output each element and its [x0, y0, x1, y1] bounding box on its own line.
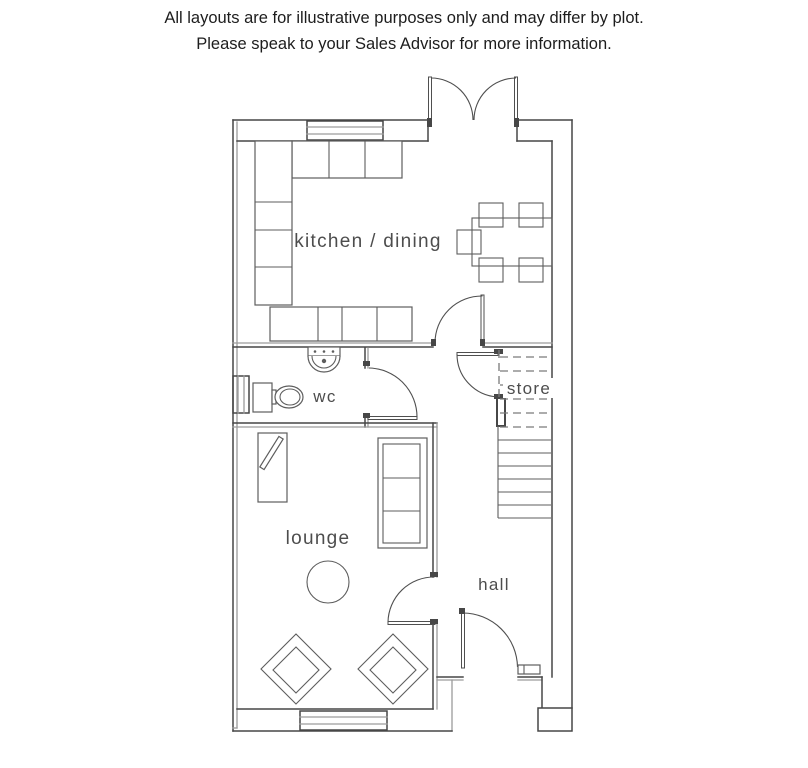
kitchen-door — [431, 295, 485, 346]
sofa — [378, 438, 427, 548]
wc-door — [363, 361, 417, 420]
dining-set — [457, 203, 552, 282]
store-door — [457, 349, 503, 399]
room-label-store: store — [507, 379, 551, 398]
porch-pier — [538, 708, 572, 731]
room-label-wc: wc — [312, 387, 336, 406]
room-label-kitchen-dining: kitchen / dining — [294, 231, 442, 252]
dining-chair — [519, 258, 543, 282]
dining-chair — [457, 230, 481, 254]
dining-table — [472, 218, 552, 266]
kitchen-window — [307, 121, 383, 140]
room-label-hall: hall — [478, 575, 510, 594]
floor-plan: kitchen / dining wc store lounge hall — [0, 0, 808, 768]
dining-chair — [519, 203, 543, 227]
store-wall-stub — [497, 398, 505, 426]
wc-window — [233, 376, 249, 413]
armchair — [261, 634, 331, 704]
stair-treads — [498, 426, 551, 518]
toilet — [253, 383, 303, 412]
front-door-latch — [518, 665, 540, 674]
dining-chair — [479, 203, 503, 227]
french-doors — [427, 77, 519, 127]
lounge-door — [388, 572, 438, 625]
floorplan-page: All layouts are for illustrative purpose… — [0, 0, 808, 768]
tv-unit — [258, 433, 287, 502]
armchair — [358, 634, 428, 704]
basin — [308, 347, 340, 372]
coffee-table — [307, 561, 349, 603]
front-door — [459, 608, 540, 674]
lounge-window — [300, 711, 387, 730]
dining-chair — [479, 258, 503, 282]
staircase — [498, 350, 551, 518]
room-label-lounge: lounge — [286, 528, 351, 549]
